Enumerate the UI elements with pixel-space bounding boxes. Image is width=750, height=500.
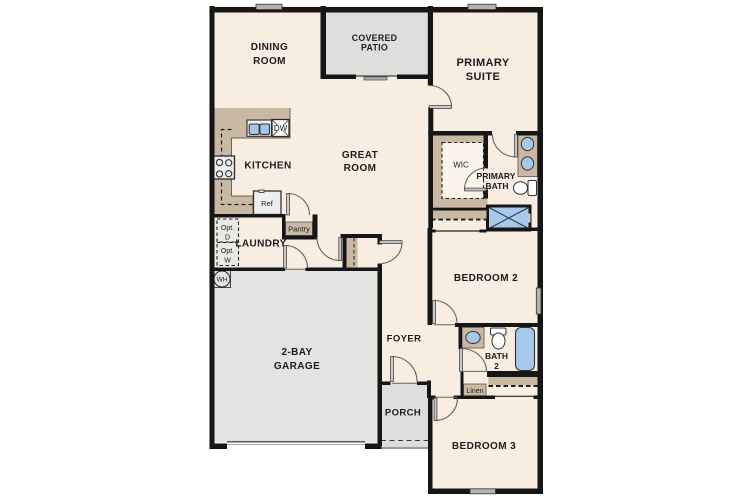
svg-text:GREAT: GREAT xyxy=(342,150,378,161)
svg-text:WH: WH xyxy=(217,277,228,284)
svg-text:2: 2 xyxy=(494,361,499,371)
svg-text:DW: DW xyxy=(274,124,288,133)
svg-text:Opt.: Opt. xyxy=(221,248,234,255)
svg-text:PORCH: PORCH xyxy=(385,408,421,419)
svg-text:2-BAY: 2-BAY xyxy=(281,347,312,358)
svg-text:PRIMARY: PRIMARY xyxy=(456,57,509,69)
svg-text:BATH: BATH xyxy=(486,181,509,191)
svg-text:BEDROOM 2: BEDROOM 2 xyxy=(454,273,518,284)
svg-text:GARAGE: GARAGE xyxy=(274,361,320,372)
svg-text:Linen: Linen xyxy=(466,388,483,395)
svg-text:D: D xyxy=(225,235,230,242)
svg-text:BEDROOM 3: BEDROOM 3 xyxy=(452,441,516,452)
svg-text:W: W xyxy=(224,258,231,265)
svg-text:SUITE: SUITE xyxy=(466,71,500,83)
svg-text:COVERED: COVERED xyxy=(352,33,398,43)
svg-text:ROOM: ROOM xyxy=(253,56,286,67)
svg-text:WIC: WIC xyxy=(453,161,469,170)
svg-text:PRIMARY: PRIMARY xyxy=(477,171,516,181)
svg-text:DINING: DINING xyxy=(251,42,288,53)
svg-text:Opt.: Opt. xyxy=(221,225,234,232)
svg-text:LAUNDRY: LAUNDRY xyxy=(235,239,286,250)
svg-text:BATH: BATH xyxy=(485,351,508,361)
svg-text:PATIO: PATIO xyxy=(361,43,388,53)
svg-text:Pantry: Pantry xyxy=(288,225,310,234)
svg-text:Ref: Ref xyxy=(261,199,274,208)
svg-text:FOYER: FOYER xyxy=(387,334,422,345)
svg-text:ROOM: ROOM xyxy=(344,163,377,174)
svg-text:KITCHEN: KITCHEN xyxy=(244,161,291,172)
